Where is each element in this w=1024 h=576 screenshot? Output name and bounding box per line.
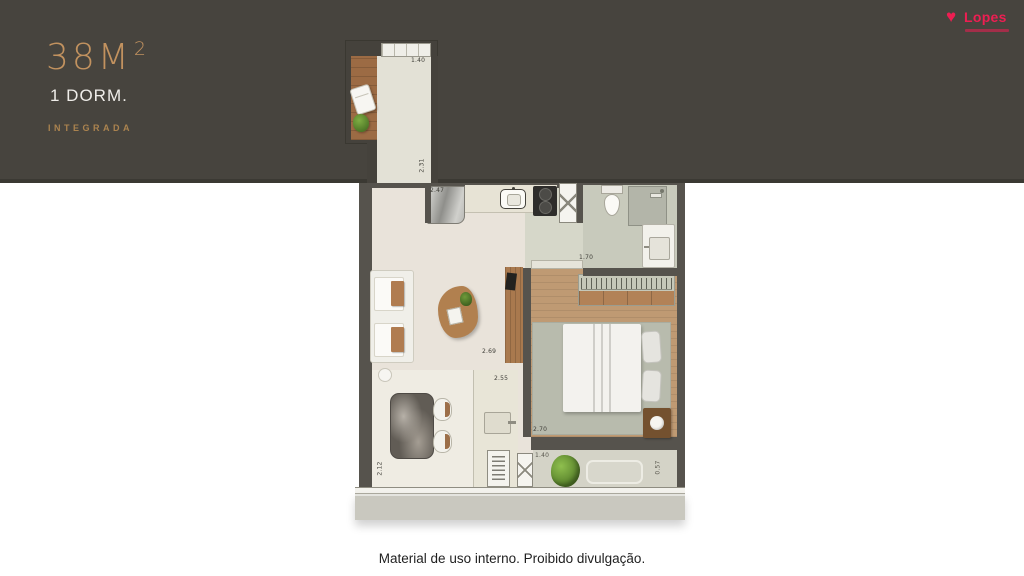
dim-living-width: 2.69 xyxy=(482,348,496,355)
footer-disclaimer: Material de uso interno. Proibido divulg… xyxy=(0,551,1024,566)
washer-vent-grille xyxy=(487,450,510,487)
heart-icon: ♥ xyxy=(946,8,956,25)
dim-kitchen: 2.47 xyxy=(430,187,444,194)
living-bedroom-wall xyxy=(523,268,531,437)
bathroom-bottom-wall xyxy=(583,268,677,276)
unit-area-value: 38M xyxy=(46,37,132,78)
facade-band xyxy=(355,493,685,520)
bed-throw-strip xyxy=(593,324,615,412)
coffee-table xyxy=(438,286,478,338)
unit-area: 38M2 xyxy=(46,40,146,76)
logo-tagline-bar xyxy=(965,29,1009,32)
bathroom-vanity-sink xyxy=(642,224,675,268)
shower xyxy=(628,186,667,226)
dim-balcony-window: 1.40 xyxy=(411,57,425,64)
kitchen-sink xyxy=(500,189,526,209)
bed-pillow xyxy=(641,370,662,403)
side-table xyxy=(378,368,392,382)
sofa xyxy=(370,270,414,363)
dining-chair xyxy=(433,398,452,421)
balcony-plant xyxy=(353,114,369,132)
dim-bedroom: 2.70 xyxy=(533,426,547,433)
unit-area-superscript: 2 xyxy=(134,38,146,60)
unit-bedrooms: 1 DORM. xyxy=(50,86,128,106)
toilet-tank xyxy=(601,185,623,194)
brand-name: Lopes xyxy=(964,9,1007,25)
ledge-planter-box xyxy=(586,460,643,484)
corridor-wall-left xyxy=(367,140,377,183)
ledge-plant xyxy=(551,455,580,487)
sofa-throw xyxy=(391,281,404,306)
coffee-table-plant xyxy=(460,292,472,306)
bedroom-bottom-wall xyxy=(531,437,677,450)
dim-ledge-depth: 0.57 xyxy=(655,460,662,474)
bedroom-entry-shelf xyxy=(531,260,583,269)
wardrobe xyxy=(578,274,675,306)
dim-ledge-width: 1.40 xyxy=(535,452,549,459)
presentation-slide: 38M2 1 DORM. INTEGRADA ♥ Lopes 1.40 2.31 xyxy=(0,0,1024,576)
coffee-table-book xyxy=(446,307,463,326)
sofa-throw xyxy=(391,327,404,352)
entry-door-hatch xyxy=(559,183,577,223)
laundry-tank xyxy=(484,412,511,434)
bed-pillow xyxy=(641,330,662,363)
dining-table xyxy=(390,393,434,459)
tv xyxy=(505,272,517,290)
corridor-wall-right xyxy=(431,56,438,188)
balcony-floor xyxy=(377,56,431,140)
balcony-window xyxy=(381,43,431,57)
wardrobe-hangers xyxy=(581,278,672,290)
unit-variant-label: INTEGRADA xyxy=(48,123,133,133)
shaft-hatch xyxy=(517,453,533,487)
dim-corridor: 2.31 xyxy=(419,158,426,172)
dim-bathroom: 1.70 xyxy=(579,254,593,261)
wardrobe-drawers xyxy=(579,291,674,305)
dim-living-depth: 2.55 xyxy=(494,375,508,382)
nightstand-with-lamp xyxy=(643,408,671,438)
floorplan: 1.40 2.31 2.47 1.70 xyxy=(345,40,685,528)
bathroom-wall-stub xyxy=(577,183,583,223)
dim-dining: 2.12 xyxy=(377,461,384,475)
cooktop xyxy=(533,186,557,216)
dining-chair xyxy=(433,430,452,453)
brand-logo: ♥ Lopes xyxy=(946,8,1016,36)
